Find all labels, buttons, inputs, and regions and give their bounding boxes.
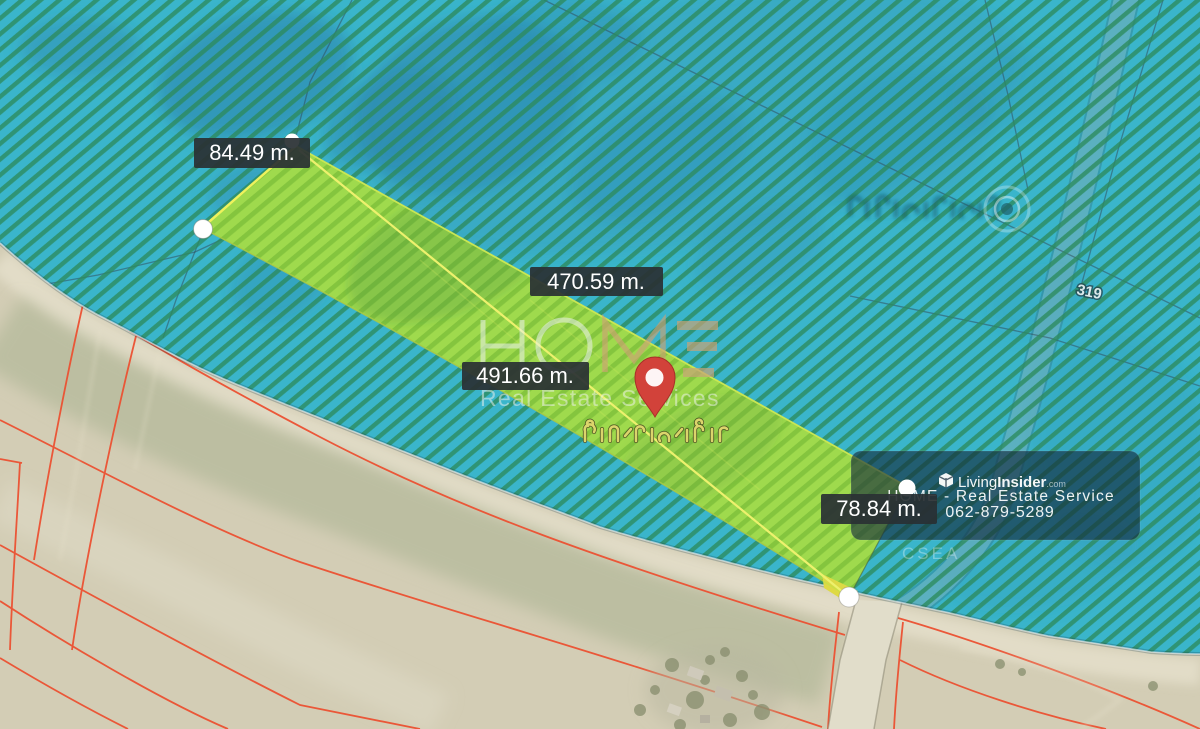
svg-text:84.49 m.: 84.49 m.: [209, 140, 295, 165]
svg-text:78.84 m.: 78.84 m.: [836, 496, 922, 521]
svg-text:491.66 m.: 491.66 m.: [476, 363, 574, 388]
svg-text:CSEA: CSEA: [902, 544, 960, 563]
svg-text:062-879-5289: 062-879-5289: [945, 504, 1054, 521]
svg-text:470.59 m.: 470.59 m.: [547, 269, 645, 294]
